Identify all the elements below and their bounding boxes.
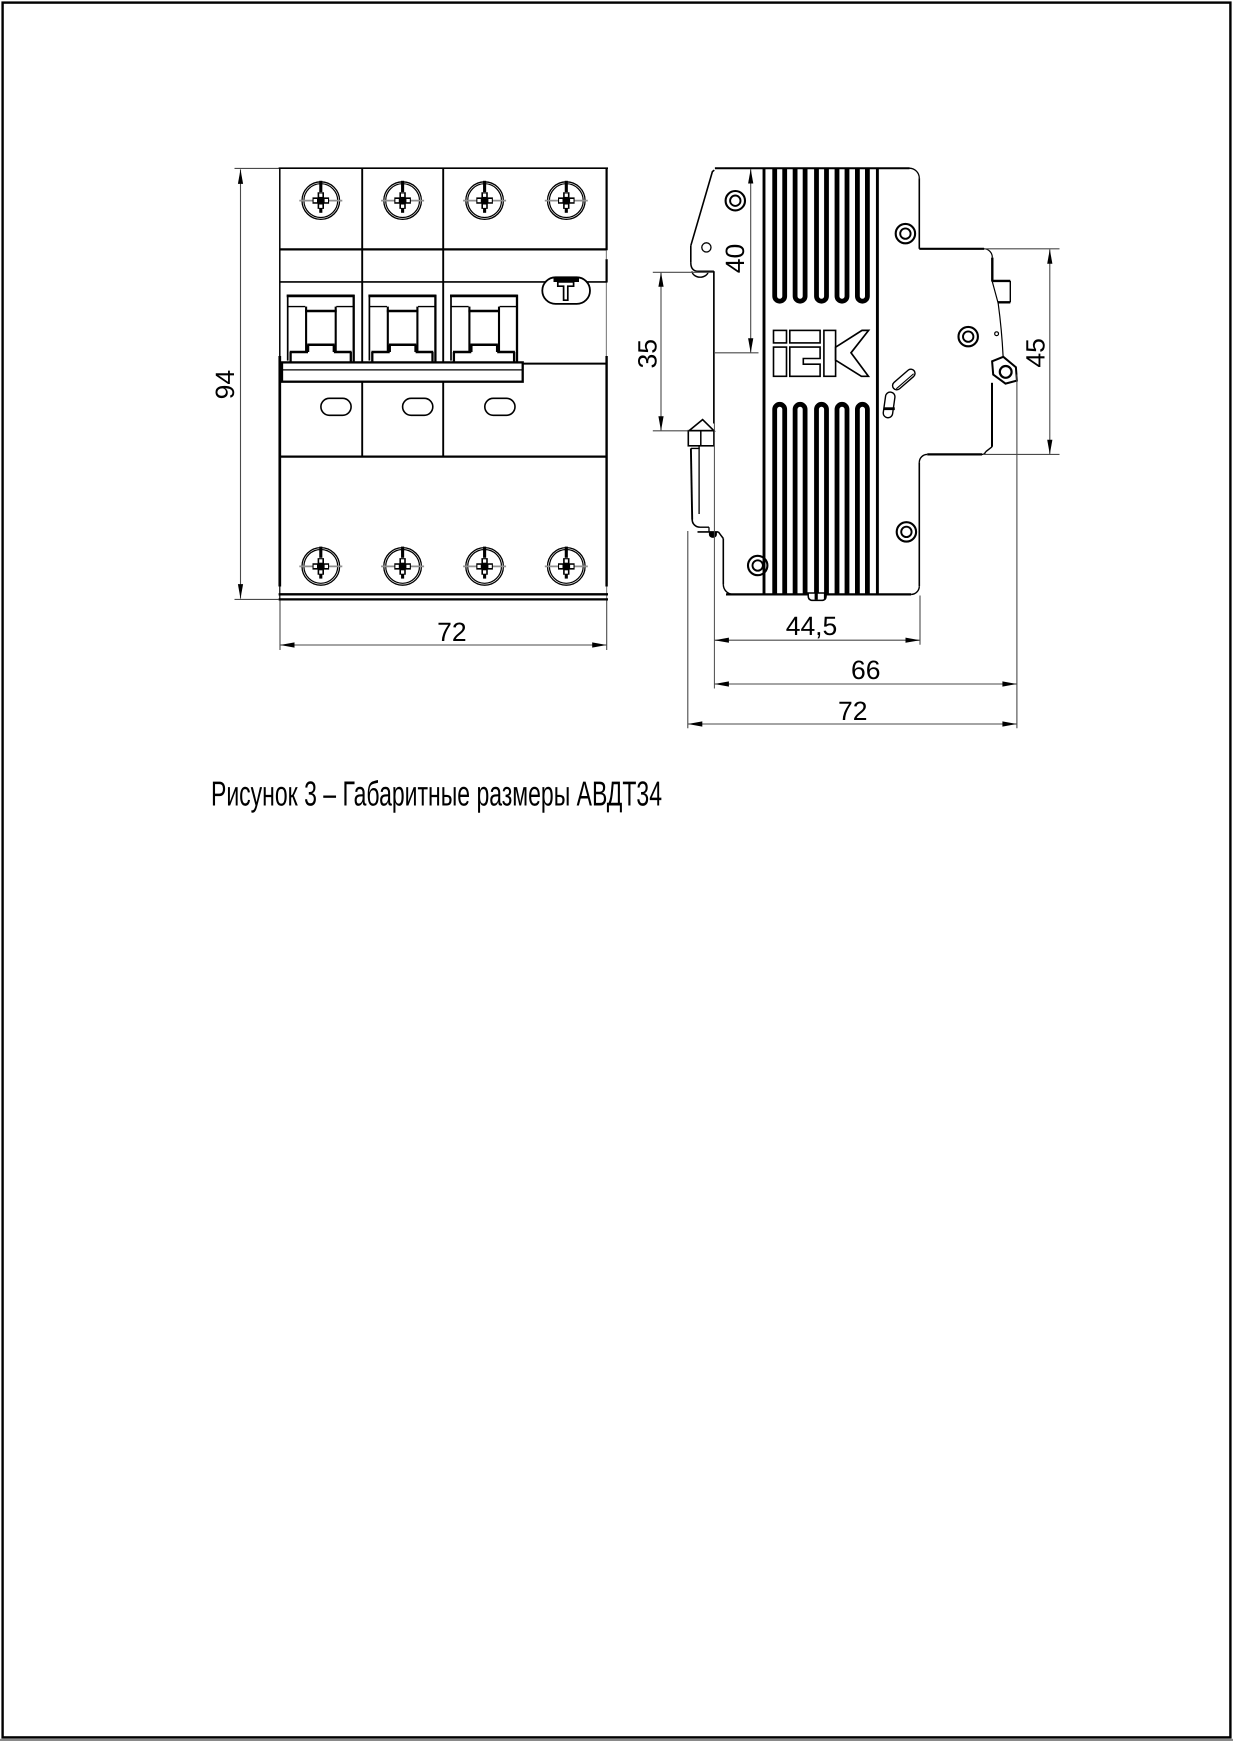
svg-text:72: 72 bbox=[437, 617, 466, 647]
svg-text:72: 72 bbox=[838, 696, 867, 726]
svg-text:35: 35 bbox=[633, 339, 663, 368]
svg-text:40: 40 bbox=[720, 244, 750, 273]
svg-text:45: 45 bbox=[1021, 338, 1051, 367]
svg-text:44,5: 44,5 bbox=[786, 611, 838, 641]
svg-text:66: 66 bbox=[851, 655, 880, 685]
svg-text:94: 94 bbox=[210, 370, 240, 399]
svg-text:Рисунок 3 – Габаритные размеры: Рисунок 3 – Габаритные размеры АВДТ34 bbox=[211, 775, 662, 814]
